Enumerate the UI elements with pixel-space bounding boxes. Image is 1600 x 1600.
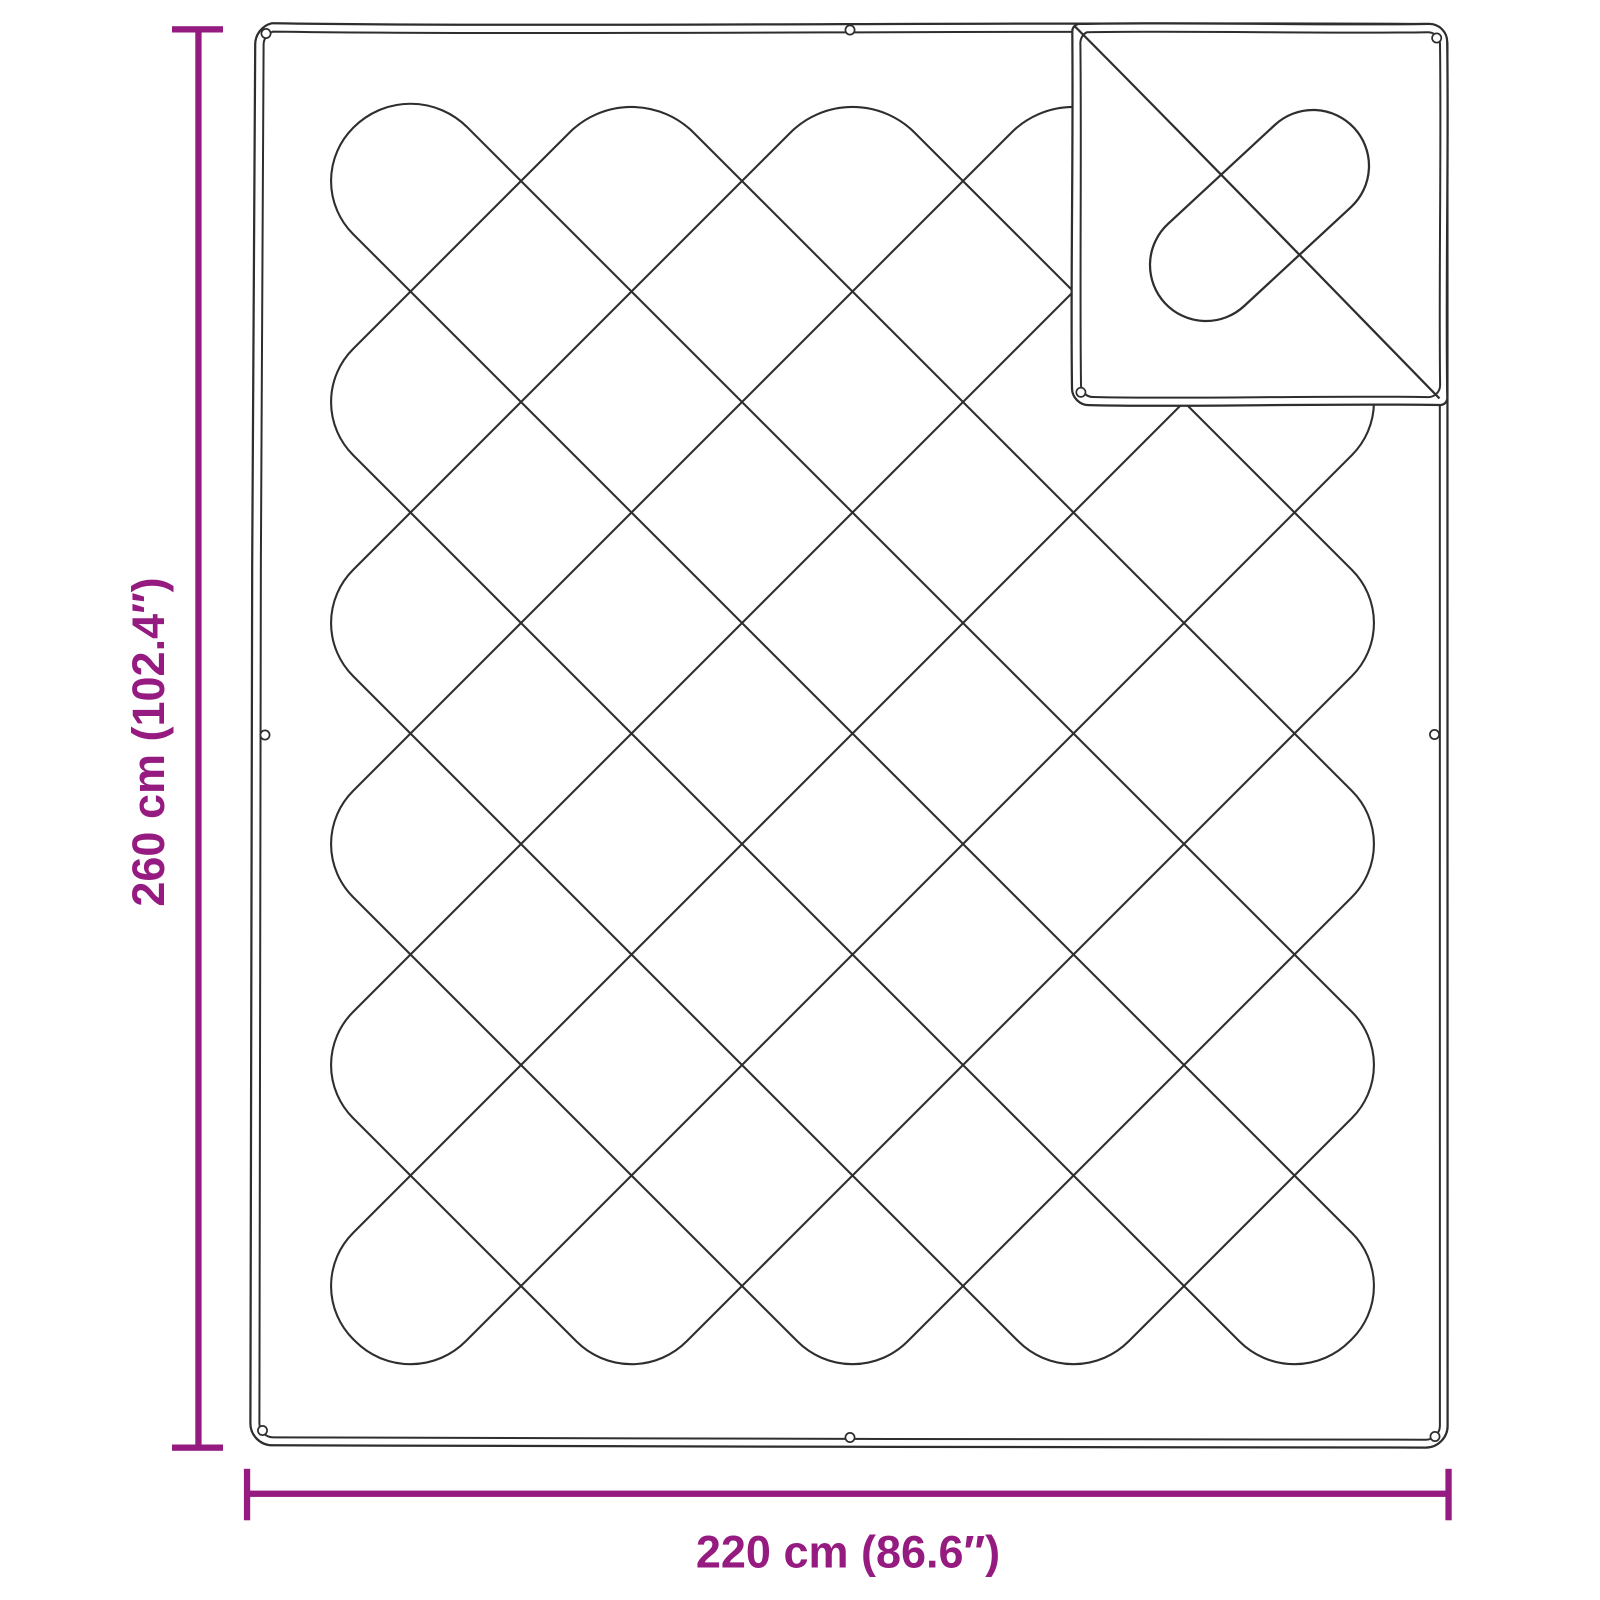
svg-text:220 cm (86.6″): 220 cm (86.6″) [696, 1527, 1000, 1578]
svg-text:260 cm (102.4″): 260 cm (102.4″) [123, 577, 174, 906]
